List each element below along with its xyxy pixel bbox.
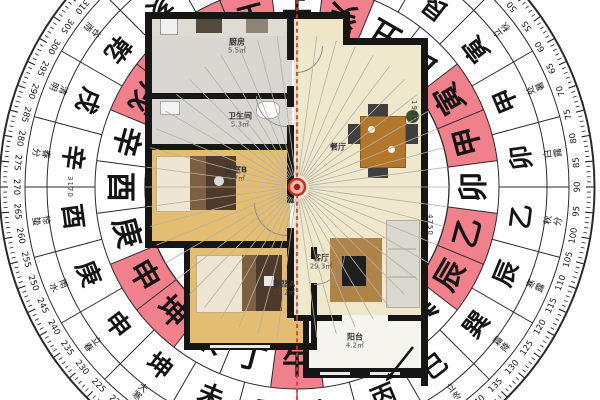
wardrobe-a-knob	[264, 276, 274, 286]
wardrobe-b-knob	[214, 176, 224, 186]
wall	[145, 12, 152, 248]
bed-b-mattress	[156, 156, 192, 212]
floorplan: 厨房 5.5㎡ 卫生间 5.3㎡ 卧室B 5.7㎡ 卧室A 11.2㎡ 餐厅 客…	[0, 0, 600, 400]
dimension-label: 1950	[410, 100, 418, 122]
wall	[311, 283, 317, 345]
wall	[287, 12, 294, 60]
dining-chair	[368, 104, 388, 116]
wall	[184, 241, 190, 350]
table-plate	[388, 146, 395, 153]
room-entry	[294, 19, 347, 45]
room-balcony	[307, 315, 421, 370]
dining-chair	[406, 124, 418, 144]
kitchen-stove	[196, 18, 222, 33]
bathroom-sink	[160, 101, 180, 115]
dining-chair	[348, 124, 360, 144]
sofa-cushion-line	[388, 248, 416, 250]
fengshui-chart: 子癸丑艮寅甲卯乙辰巽巳丙午丁未坤申庚酉辛戌乾亥壬子癸丑艮寅甲卯乙辰巽巳丙午丁未坤…	[0, 0, 600, 400]
table-plate	[368, 126, 375, 133]
wall	[421, 38, 428, 386]
wall	[150, 144, 293, 150]
dimension-label: 3170	[66, 176, 74, 198]
window	[210, 345, 270, 348]
sofa	[386, 220, 420, 308]
wall	[287, 228, 294, 318]
wall	[294, 315, 342, 321]
kitchen-sink	[160, 18, 178, 35]
wall	[145, 12, 350, 19]
dimension-label: 4750	[426, 214, 434, 236]
kitchen-appliance	[246, 18, 268, 33]
wall	[287, 125, 294, 203]
balcony-window	[370, 372, 400, 375]
bed-a-blanket	[242, 255, 256, 311]
balcony-window	[320, 372, 350, 375]
bed-b-blanket	[190, 156, 206, 210]
sofa-cushion-line	[388, 276, 416, 278]
wall	[343, 38, 428, 45]
wall	[145, 241, 293, 248]
wall	[287, 86, 294, 107]
tv-cabinet	[342, 256, 366, 286]
wall	[388, 315, 421, 321]
bed-a-mattress	[196, 255, 244, 313]
wall	[303, 315, 309, 375]
dining-table	[360, 116, 406, 168]
